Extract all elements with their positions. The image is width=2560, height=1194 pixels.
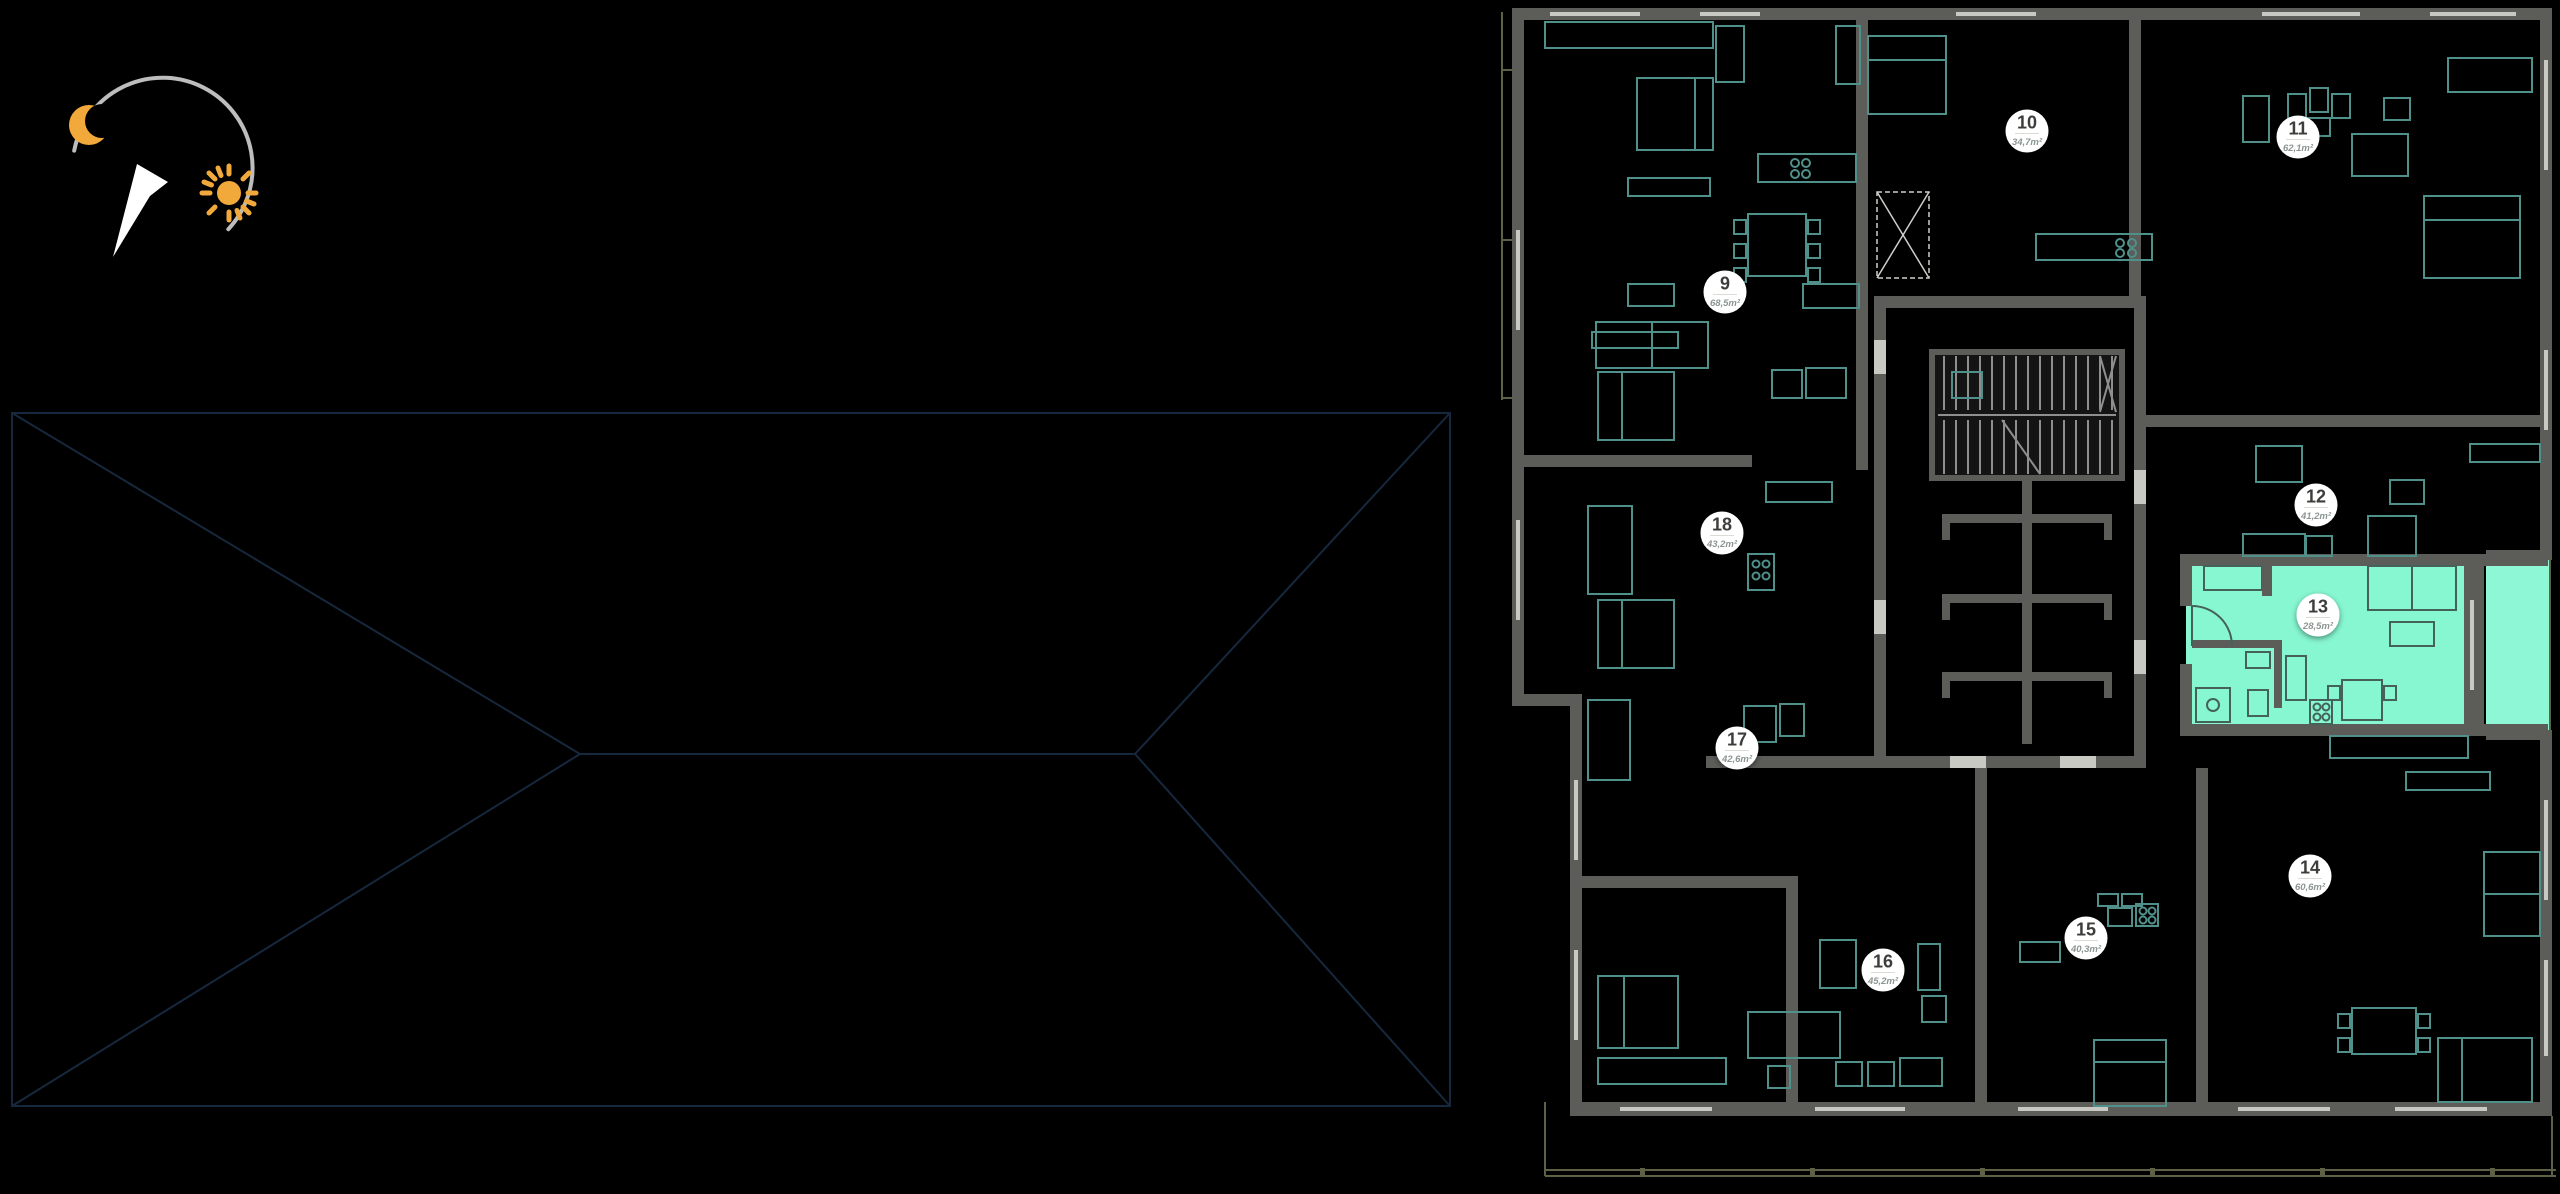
compass: [69, 78, 256, 257]
unit-number: 13: [2308, 597, 2328, 617]
site-plan-svg: 968,5m²1034,7m²1162,1m²1241,2m²1328,5m²1…: [0, 0, 2560, 1194]
unit-9-furniture: [1545, 22, 1859, 368]
elevator-bank: [1942, 478, 2112, 744]
unit-number: 11: [2288, 119, 2307, 139]
stairwell: [1932, 352, 2122, 478]
north-arrow-icon: [113, 164, 168, 257]
unit-area: 41,2m²: [2300, 511, 2332, 522]
unit-14-furniture: [2330, 736, 2540, 1102]
unit-badge-14[interactable]: 1460,6m²: [2289, 855, 2332, 898]
unit-area: 45,2m²: [1867, 976, 1899, 987]
unit-17-furniture: [1588, 600, 1804, 780]
unit-area: 40,3m²: [2070, 944, 2102, 955]
unit-number: 9: [1720, 274, 1730, 294]
unit-badge-18[interactable]: 1843,2m²: [1701, 512, 1744, 555]
unit-10-furniture: [1772, 26, 2152, 398]
unit-12-furniture: [2243, 444, 2540, 556]
unit-number: 14: [2300, 858, 2320, 878]
unit-number: 15: [2076, 920, 2096, 940]
unit-badge-17[interactable]: 1742,6m²: [1716, 727, 1759, 770]
unit-badge-9[interactable]: 968,5m²: [1704, 271, 1747, 314]
unit-11-furniture: [2243, 58, 2532, 278]
floor-plan-view: 968,5m²1034,7m²1162,1m²1241,2m²1328,5m²1…: [0, 0, 2560, 1194]
unit-number: 12: [2306, 487, 2326, 507]
unit-number: 10: [2017, 113, 2037, 133]
bottom-left-furniture: [1598, 976, 1942, 1088]
unit-number: 18: [1712, 515, 1732, 535]
moon-icon: [69, 104, 119, 145]
unit-area: 28,5m²: [2302, 621, 2334, 632]
compass-ring: [74, 78, 252, 229]
unit-area: 42,6m²: [1721, 754, 1753, 765]
unit-area: 60,6m²: [2295, 882, 2326, 893]
unit-badge-11[interactable]: 1162,1m²: [2277, 116, 2320, 159]
unit-number: 17: [1727, 730, 1747, 750]
unit-area: 62,1m²: [2283, 143, 2314, 154]
left-balcony-railing: [1502, 12, 1512, 400]
unit-badge-10[interactable]: 1034,7m²: [2006, 110, 2049, 153]
sun-icon: [202, 166, 256, 220]
unit-badge-12[interactable]: 1241,2m²: [2295, 484, 2338, 527]
building-roof-outline: [12, 413, 1450, 1106]
unit-area: 43,2m²: [1706, 539, 1738, 550]
unit-badge-13[interactable]: 1328,5m²: [2297, 594, 2340, 637]
floorplan: 968,5m²1034,7m²1162,1m²1241,2m²1328,5m²1…: [1502, 8, 2556, 1176]
unit-number: 16: [1873, 952, 1893, 972]
vent-shaft: [1877, 192, 1929, 278]
unit-badge-15[interactable]: 1540,3m²: [2065, 917, 2108, 960]
unit-badge-16[interactable]: 1645,2m²: [1862, 949, 1905, 992]
unit-area: 68,5m²: [1710, 298, 1741, 309]
unit-13-balcony: [2486, 552, 2550, 738]
unit-area: 34,7m²: [2012, 137, 2043, 148]
